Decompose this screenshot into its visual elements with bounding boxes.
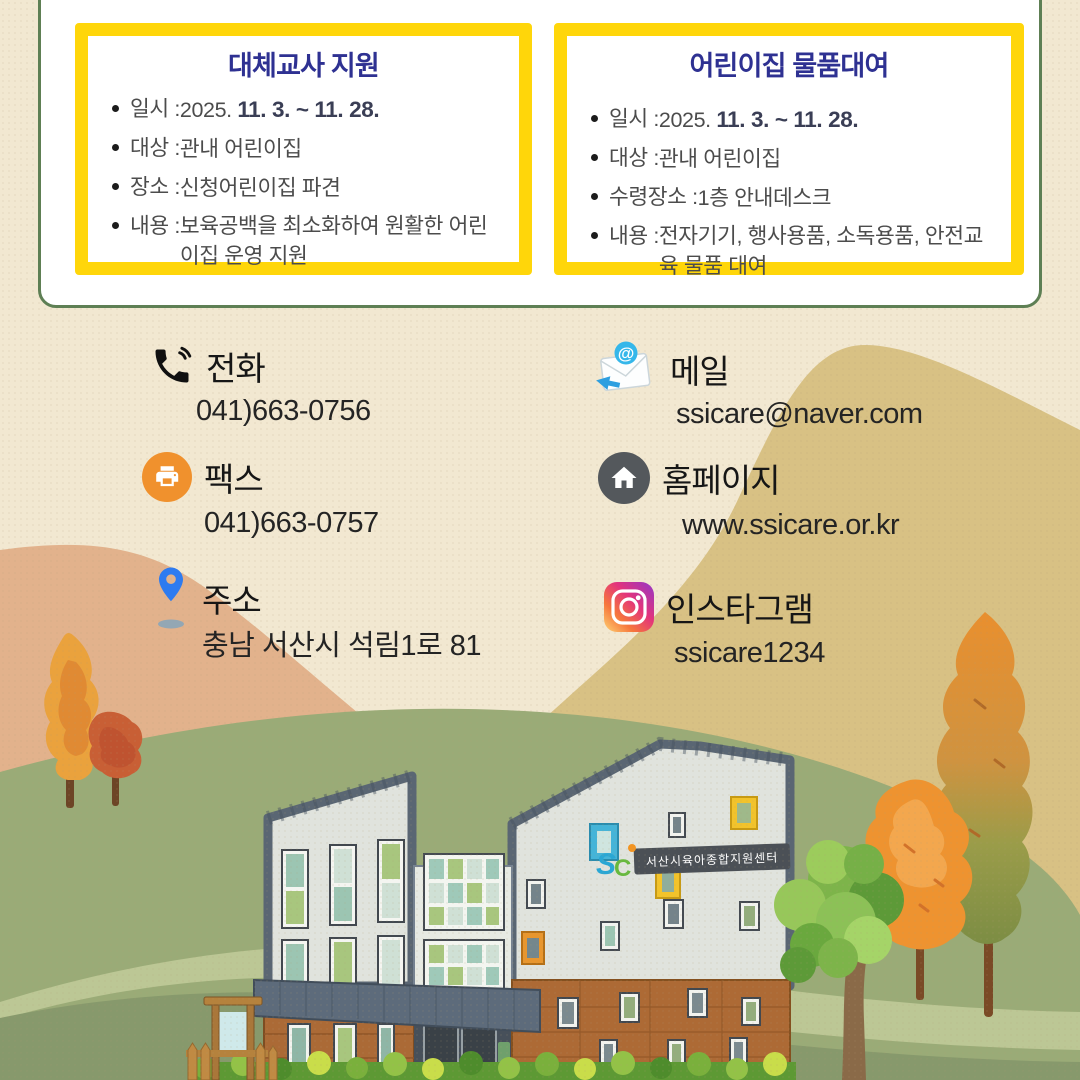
box-title: 대체교사 지원 <box>88 44 519 83</box>
logo: S C <box>596 844 636 882</box>
bullet-item: 수령장소 : 1층 안내데스크 <box>587 183 997 213</box>
info-card: 대체교사 지원 일시 : 2025. 11. 3. ~ 11. 28. 대상 :… <box>38 0 1042 308</box>
contact-value: ssicare@naver.com <box>676 398 923 431</box>
mail-icon: @ <box>592 340 658 398</box>
contact-value: 충남 서산시 석림1로 81 <box>202 622 481 664</box>
contact-phone: 전화 041)663-0756 <box>150 342 371 428</box>
box-equipment-rental: 어린이집 물품대여 일시 : 2025. 11. 3. ~ 11. 28. 대상… <box>554 23 1024 275</box>
bullet-dot <box>112 144 119 151</box>
instagram-icon <box>604 582 654 632</box>
contact-instagram: 인스타그램 ssicare1234 <box>604 582 825 670</box>
phone-icon <box>150 344 194 388</box>
bullet-list: 일시 : 2025. 11. 3. ~ 11. 28. 대상 : 관내 어린이집… <box>567 105 1011 281</box>
poster: 서산시육아종합지원센터 S C <box>0 0 1080 1080</box>
contact-mail: @ 메일 ssicare@naver.com <box>592 340 923 431</box>
bullet-item: 내용 : 전자기기, 행사용품, 소독용품, 안전교육 물품 대여 <box>587 222 997 281</box>
bullet-list: 일시 : 2025. 11. 3. ~ 11. 28. 대상 : 관내 어린이집… <box>88 95 519 271</box>
svg-text:@: @ <box>618 344 635 363</box>
contact-label: 팩스 <box>204 453 263 501</box>
logo-c: C <box>614 855 631 882</box>
contact-address: 주소 충남 서산시 석림1로 81 <box>152 566 481 664</box>
contact-label: 홈페이지 <box>662 454 779 502</box>
contact-fax: 팩스 041)663-0757 <box>142 452 379 540</box>
bullet-dot <box>591 115 598 122</box>
building-sign: 서산시육아종합지원센터 <box>634 843 791 874</box>
bullet-item: 일시 : 2025. 11. 3. ~ 11. 28. <box>108 95 505 125</box>
fax-icon <box>142 452 192 502</box>
bullet-dot <box>112 222 119 229</box>
contact-value: www.ssicare.or.kr <box>682 509 899 542</box>
logo-s: S <box>596 848 616 881</box>
bullet-dot <box>591 193 598 200</box>
bullet-dot <box>112 183 119 190</box>
bullet-item: 내용 : 보육공백을 최소화하여 원활한 어린이집 운영 지원 <box>108 212 505 271</box>
contact-value: 041)663-0757 <box>204 507 379 540</box>
bullet-item: 대상 : 관내 어린이집 <box>587 144 997 174</box>
box-substitute-teacher: 대체교사 지원 일시 : 2025. 11. 3. ~ 11. 28. 대상 :… <box>75 23 532 275</box>
bullet-item: 장소 : 신청어린이집 파견 <box>108 173 505 203</box>
bullet-item: 대상 : 관내 어린이집 <box>108 134 505 164</box>
contact-label: 메일 <box>670 345 729 393</box>
contact-value: ssicare1234 <box>674 637 825 670</box>
window-grid-upper <box>424 854 504 930</box>
contact-label: 주소 <box>202 574 261 622</box>
home-icon <box>598 452 650 504</box>
bullet-dot <box>112 105 119 112</box>
contact-label: 인스타그램 <box>666 583 813 631</box>
contact-value: 041)663-0756 <box>196 395 371 428</box>
contact-homepage: 홈페이지 www.ssicare.or.kr <box>598 452 899 542</box>
bullet-dot <box>591 154 598 161</box>
contact-label: 전화 <box>206 342 265 390</box>
box-title: 어린이집 물품대여 <box>567 44 1011 83</box>
bullet-item: 일시 : 2025. 11. 3. ~ 11. 28. <box>587 105 997 135</box>
bullet-dot <box>591 232 598 239</box>
left-block-windows <box>282 840 404 988</box>
pin-icon <box>152 566 190 630</box>
